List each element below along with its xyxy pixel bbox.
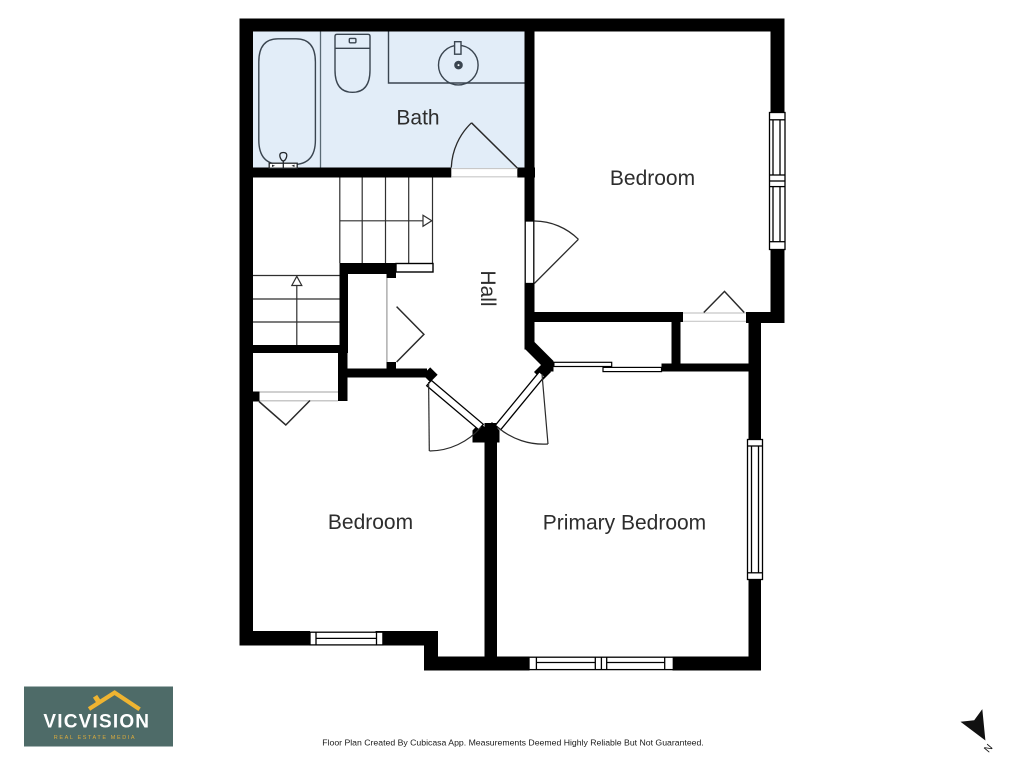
svg-text:REAL ESTATE MEDIA: REAL ESTATE MEDIA — [54, 735, 136, 741]
svg-text:VICVISION: VICVISION — [43, 712, 150, 733]
svg-text:Bath: Bath — [396, 107, 439, 130]
svg-text:Hall: Hall — [476, 270, 499, 306]
svg-text:Bedroom: Bedroom — [328, 511, 413, 534]
svg-text:Bedroom: Bedroom — [610, 167, 695, 190]
svg-text:Floor Plan Created By Cubicasa: Floor Plan Created By Cubicasa App. Meas… — [322, 738, 703, 748]
svg-text:Primary Bedroom: Primary Bedroom — [543, 512, 706, 535]
